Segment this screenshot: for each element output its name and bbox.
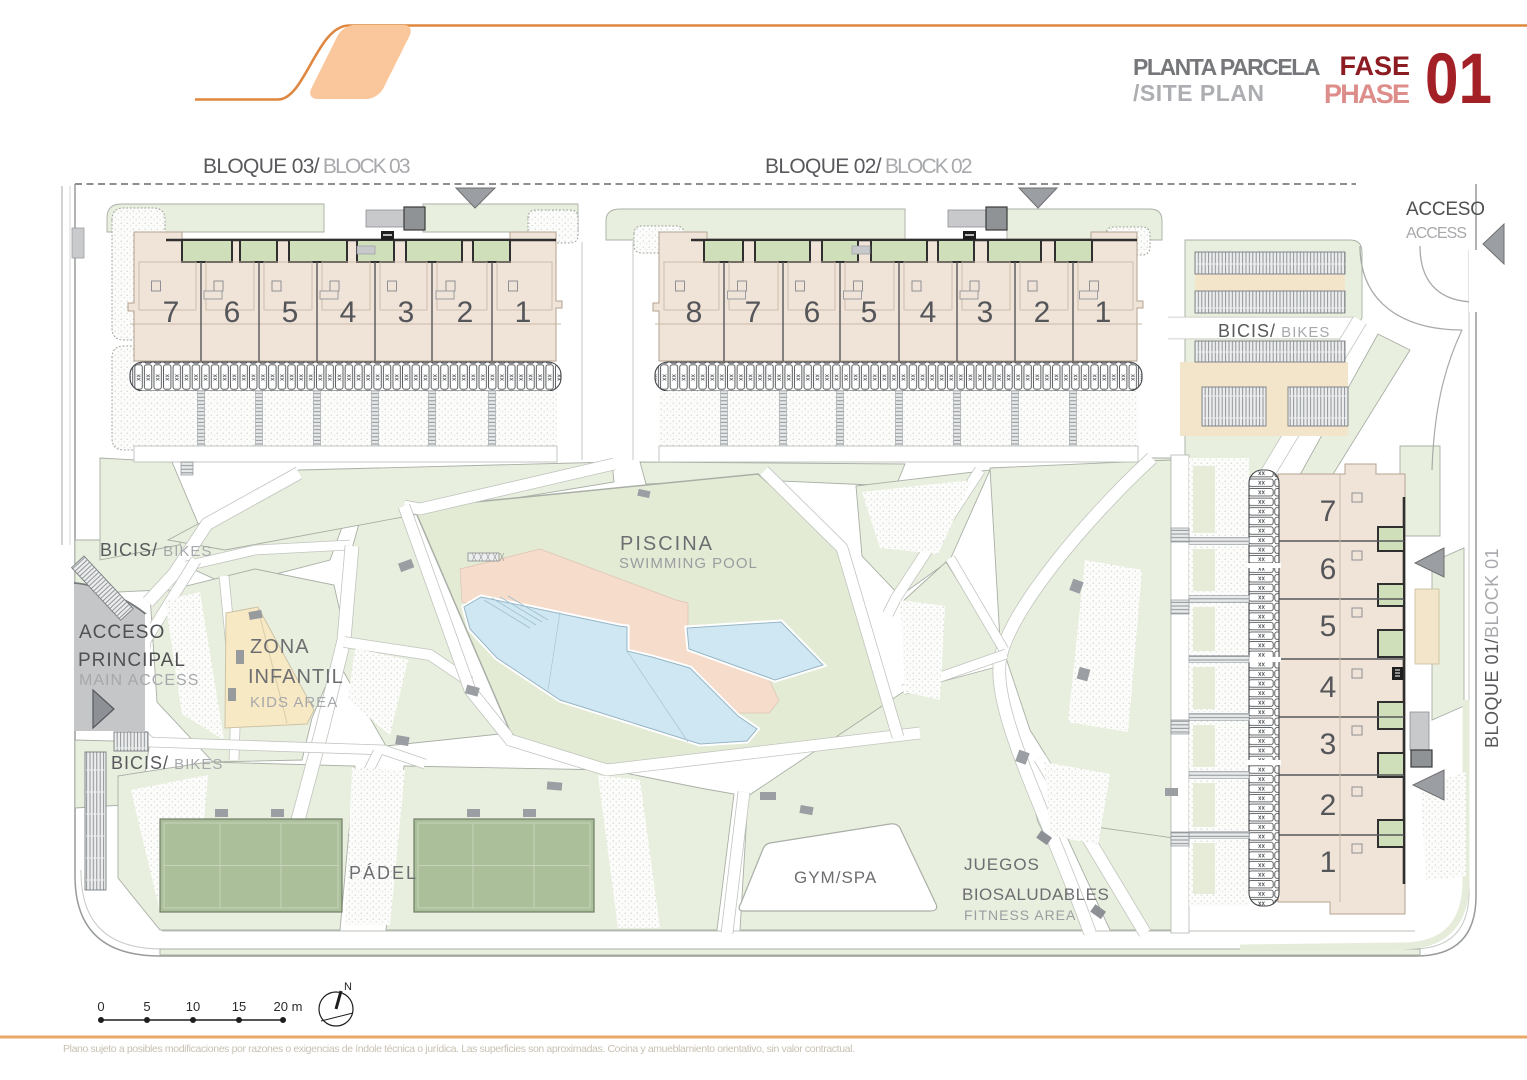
svg-text:3: 3 [1320, 728, 1337, 761]
svg-text:ACCESO: ACCESO [79, 622, 165, 643]
svg-text:BICIS/ BIKES: BICIS/ BIKES [100, 540, 212, 560]
svg-text:2: 2 [1034, 296, 1051, 329]
svg-text:01: 01 [1425, 40, 1492, 119]
svg-text:FASE: FASE [1339, 51, 1410, 81]
svg-text:INFANTIL: INFANTIL [248, 666, 344, 688]
svg-text:3: 3 [977, 296, 994, 329]
svg-text:BICIS/ BIKES: BICIS/ BIKES [111, 753, 223, 773]
svg-text:BLOQUE 03/ BLOCK 03: BLOQUE 03/ BLOCK 03 [203, 155, 411, 178]
svg-text:1: 1 [515, 296, 532, 329]
svg-text:BLOQUE 01/BLOCK 01: BLOQUE 01/BLOCK 01 [1482, 548, 1502, 748]
svg-text:BLOQUE 02/ BLOCK 02: BLOQUE 02/ BLOCK 02 [765, 155, 973, 178]
svg-text:PÁDEL: PÁDEL [349, 863, 418, 883]
svg-text:1: 1 [1320, 846, 1337, 879]
svg-text:3: 3 [398, 296, 415, 329]
svg-text:5: 5 [1320, 610, 1337, 643]
svg-text:10: 10 [186, 999, 200, 1014]
svg-text:BICIS/ BIKES: BICIS/ BIKES [1218, 321, 1330, 341]
svg-text:2: 2 [457, 296, 474, 329]
svg-text:MAIN ACCESS: MAIN ACCESS [79, 672, 199, 689]
svg-text:5: 5 [143, 999, 150, 1014]
svg-text:7: 7 [1320, 495, 1337, 528]
svg-text:6: 6 [1320, 553, 1337, 586]
svg-text:7: 7 [745, 296, 762, 329]
svg-text:/SITE PLAN: /SITE PLAN [1133, 80, 1265, 106]
svg-text:5: 5 [282, 296, 299, 329]
svg-text:ACCESO: ACCESO [1406, 199, 1486, 220]
svg-text:SWIMMING POOL: SWIMMING POOL [619, 555, 758, 572]
svg-text:0: 0 [97, 999, 104, 1014]
svg-text:PHASE: PHASE [1324, 79, 1410, 109]
svg-text:2: 2 [1320, 789, 1337, 822]
svg-text:5: 5 [861, 296, 878, 329]
svg-text:PISCINA: PISCINA [620, 533, 714, 555]
svg-text:6: 6 [224, 296, 241, 329]
svg-text:ZONA: ZONA [250, 636, 310, 658]
svg-text:GYM/SPA: GYM/SPA [794, 868, 877, 887]
svg-text:7: 7 [163, 296, 180, 329]
svg-text:JUEGOS: JUEGOS [964, 855, 1040, 874]
svg-text:N: N [344, 981, 352, 993]
svg-text:FITNESS AREA: FITNESS AREA [964, 907, 1076, 923]
svg-text:BIOSALUDABLES: BIOSALUDABLES [962, 885, 1109, 904]
svg-text:4: 4 [920, 296, 937, 329]
svg-text:KIDS AREA: KIDS AREA [250, 694, 338, 711]
svg-text:4: 4 [1320, 671, 1337, 704]
svg-text:4: 4 [340, 296, 357, 329]
svg-text:6: 6 [804, 296, 821, 329]
svg-text:PLANTA PARCELA: PLANTA PARCELA [1133, 54, 1321, 80]
svg-text:8: 8 [686, 296, 703, 329]
svg-text:PRINCIPAL: PRINCIPAL [78, 650, 186, 671]
svg-text:Plano sujeto a posibles modifi: Plano sujeto a posibles modificaciones p… [63, 1043, 855, 1055]
svg-text:1: 1 [1095, 296, 1112, 329]
svg-text:20 m: 20 m [274, 999, 303, 1014]
svg-text:ACCESS: ACCESS [1406, 225, 1468, 242]
svg-text:15: 15 [232, 999, 246, 1014]
